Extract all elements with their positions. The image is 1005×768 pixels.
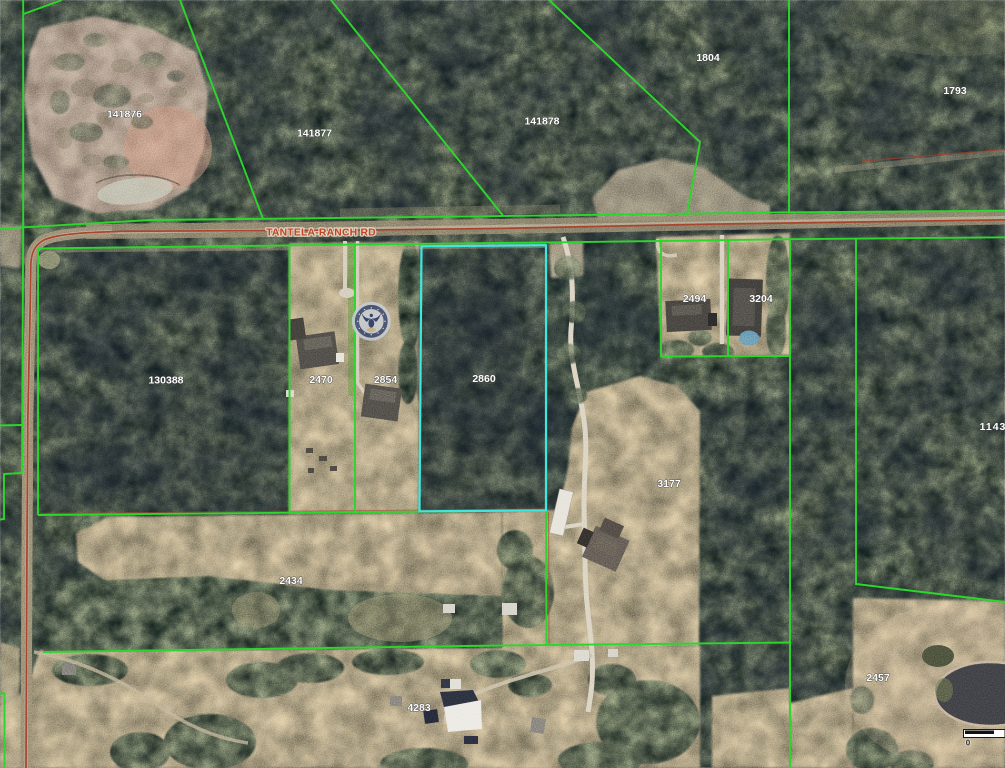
svg-text:2494: 2494 xyxy=(683,293,707,305)
svg-text:3177: 3177 xyxy=(657,478,681,490)
svg-text:2470: 2470 xyxy=(309,374,333,386)
svg-text:130388: 130388 xyxy=(148,375,183,387)
svg-text:2860: 2860 xyxy=(472,373,496,385)
svg-text:0: 0 xyxy=(966,739,971,748)
svg-text:TANTELA-RANCH RD: TANTELA-RANCH RD xyxy=(266,228,376,239)
svg-text:2457: 2457 xyxy=(866,672,890,684)
svg-text:4283: 4283 xyxy=(407,702,431,714)
svg-text:141876: 141876 xyxy=(107,109,142,121)
svg-text:1143: 1143 xyxy=(980,421,1005,433)
svg-text:1804: 1804 xyxy=(696,52,720,64)
svg-text:2854: 2854 xyxy=(374,374,398,386)
svg-text:2434: 2434 xyxy=(279,575,303,587)
svg-text:1793: 1793 xyxy=(943,85,967,97)
svg-text:141878: 141878 xyxy=(524,116,559,128)
svg-text:141877: 141877 xyxy=(297,128,332,140)
svg-text:3204: 3204 xyxy=(749,293,773,305)
